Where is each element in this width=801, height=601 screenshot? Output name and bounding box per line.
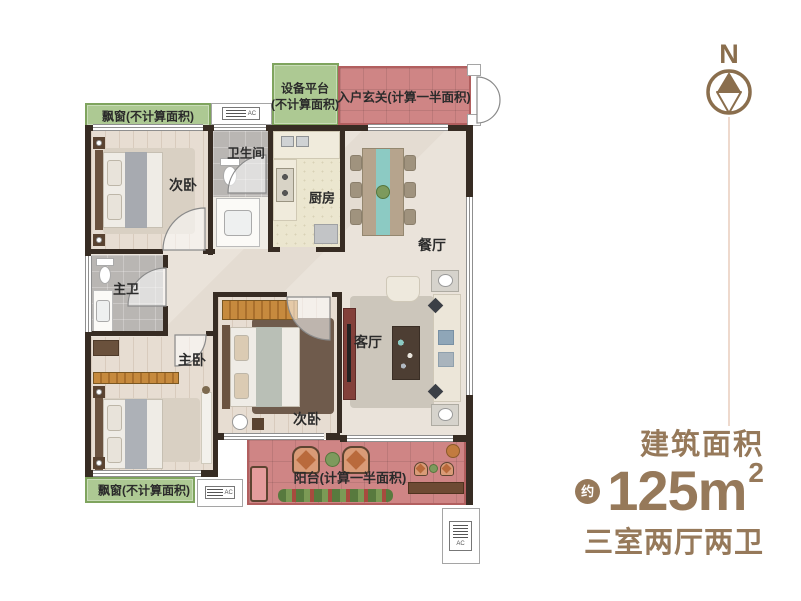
- vanity-sink: [96, 300, 110, 322]
- layout-text: 三室两厅两卫: [575, 519, 764, 561]
- armchair: [386, 276, 420, 302]
- plant-icon: [446, 444, 460, 458]
- window: [93, 470, 201, 477]
- room-label-master: 主卧: [178, 350, 206, 370]
- kitchen-sink: [296, 136, 309, 147]
- coffee-table: [392, 326, 420, 380]
- toilet-bowl: [99, 266, 111, 284]
- zone-label-bay-top: 飘窗(不计算面积): [102, 108, 194, 125]
- lamp-icon: [96, 237, 102, 243]
- balcony-chair: [414, 462, 428, 476]
- bed: [95, 150, 163, 230]
- bed-blanket: [125, 399, 147, 469]
- window: [368, 124, 448, 131]
- lamp-icon: [96, 389, 102, 395]
- wall-segment: [215, 292, 287, 297]
- area-exponent: 2: [748, 457, 764, 489]
- bed-pillow: [234, 335, 249, 361]
- wall-segment: [340, 435, 347, 442]
- wall-segment: [201, 470, 215, 477]
- window: [466, 197, 473, 395]
- bed-pillow: [234, 373, 249, 399]
- table-lamp-icon: [438, 274, 453, 287]
- ac-grille-icon: [226, 110, 246, 117]
- ac-grille-icon: [453, 525, 468, 539]
- plant-icon: [325, 452, 340, 467]
- wall-segment: [163, 306, 168, 332]
- toilet-tank: [96, 258, 114, 266]
- area-value: 125m: [607, 463, 746, 519]
- wall-segment: [326, 433, 340, 440]
- window: [224, 433, 324, 440]
- dining-chair: [350, 182, 362, 198]
- zone-label-entry: 入户玄关(计算一半面积): [337, 87, 470, 106]
- bedside-table: [232, 414, 248, 430]
- sofa-cushion: [438, 352, 454, 367]
- wall-segment: [213, 292, 218, 477]
- ac-unit-label: AC: [248, 111, 256, 117]
- ac-unit-icon: AC: [205, 486, 235, 499]
- room-label-living: 客厅: [354, 332, 382, 352]
- bed-blanket: [256, 327, 282, 407]
- wardrobe: [222, 300, 298, 320]
- dining-chair: [404, 209, 416, 225]
- plant-icon: [429, 464, 438, 473]
- approx-badge: 约: [575, 479, 600, 504]
- ac-grille-icon: [207, 489, 222, 496]
- balcony-cabinet: [250, 466, 268, 502]
- info-panel: 建筑面积 约 125m 2 三室两厅两卫: [575, 421, 764, 561]
- chair-cushion: [442, 464, 452, 474]
- bed-pillow: [107, 160, 122, 186]
- window: [85, 256, 92, 332]
- window: [214, 124, 266, 131]
- bed-pillow: [107, 437, 122, 463]
- wall-segment: [466, 442, 473, 505]
- bed-pillow: [107, 405, 122, 431]
- sofa-cushion: [438, 330, 454, 345]
- lamp-icon: [96, 460, 102, 466]
- table-lamp-icon: [438, 408, 453, 421]
- wall-segment: [340, 125, 345, 252]
- compass-north-label: N: [707, 39, 751, 70]
- ac-unit-label: AC: [456, 541, 464, 547]
- wall-segment: [85, 249, 163, 254]
- ac-unit-label: AC: [225, 490, 233, 496]
- floorplan-canvas: AC AC AC: [0, 0, 801, 601]
- window: [347, 435, 453, 442]
- flower-planter: [278, 489, 393, 502]
- room-label-bedroom1: 次卧: [169, 175, 197, 195]
- zone-label-balcony: 阳台(计算一半面积): [294, 468, 407, 487]
- ac-unit-icon: AC: [222, 107, 260, 120]
- door-frame-top: [467, 64, 481, 76]
- toilet-bowl: [223, 166, 237, 186]
- zone-label-bay-bottom: 飘窗(不计算面积): [98, 482, 190, 499]
- room-label-master-bath: 主卫: [113, 279, 139, 298]
- wall-segment: [337, 292, 342, 433]
- wardrobe: [93, 372, 179, 384]
- vanity-sink: [224, 210, 252, 236]
- dining-chair: [350, 155, 362, 171]
- wall-segment: [85, 470, 93, 477]
- cabinet: [93, 340, 119, 356]
- area-title: 建筑面积: [575, 421, 764, 463]
- zone-label-equip-line1: 设备平台: [281, 80, 329, 97]
- nightstand: [93, 137, 105, 149]
- stool: [252, 418, 264, 430]
- fridge: [314, 224, 338, 244]
- ac-unit-icon: AC: [449, 521, 472, 551]
- bed-headboard: [95, 150, 103, 230]
- balcony-bench: [408, 482, 464, 494]
- wall-segment: [208, 125, 213, 255]
- dining-chair: [404, 182, 416, 198]
- room-label-bathroom: 卫生间: [227, 143, 265, 162]
- nightstand: [93, 386, 105, 398]
- bed-blanket: [125, 152, 147, 228]
- wall-segment: [268, 125, 273, 252]
- chair-cushion: [416, 464, 426, 474]
- zone-label-equip-line2: (不计算面积): [271, 96, 339, 113]
- dresser: [201, 392, 212, 464]
- dining-chair: [350, 209, 362, 225]
- wall-segment: [85, 331, 168, 336]
- wall-segment: [163, 255, 168, 268]
- bed: [95, 397, 163, 471]
- dining-chair: [404, 155, 416, 171]
- stove-icon: [276, 168, 294, 202]
- kitchen-sink: [281, 136, 294, 147]
- plant-icon: [202, 386, 210, 394]
- compass-icon: [708, 71, 750, 113]
- nightstand: [93, 234, 105, 246]
- room-label-kitchen: 厨房: [309, 188, 335, 207]
- balcony-chair: [440, 462, 454, 476]
- bed: [222, 325, 300, 409]
- tv-icon: [347, 324, 351, 382]
- plant-icon: [376, 185, 390, 199]
- room-label-bedroom2: 次卧: [293, 409, 321, 429]
- area-row: 约 125m 2: [575, 463, 764, 519]
- room-label-dining: 餐厅: [418, 235, 446, 255]
- wall-segment: [453, 435, 473, 442]
- nightstand: [93, 457, 105, 469]
- bed-pillow: [107, 194, 122, 220]
- bed-headboard: [222, 325, 230, 409]
- window: [93, 124, 203, 131]
- lamp-icon: [96, 140, 102, 146]
